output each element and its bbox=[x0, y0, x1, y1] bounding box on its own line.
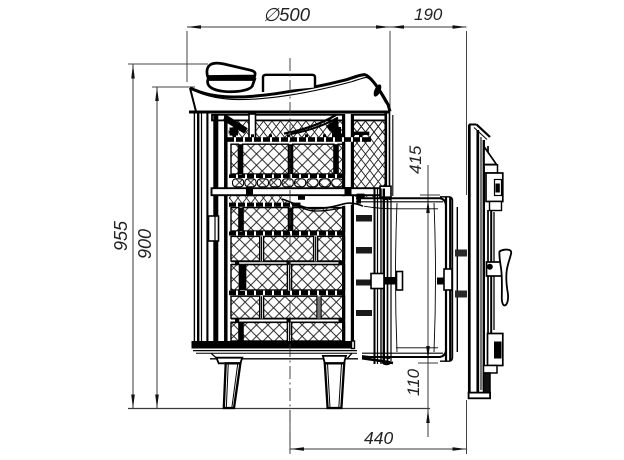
svg-text:900: 900 bbox=[135, 229, 155, 259]
svg-text:110: 110 bbox=[404, 368, 423, 396]
svg-text:415: 415 bbox=[406, 145, 425, 174]
svg-text:∅500: ∅500 bbox=[263, 4, 311, 25]
svg-text:955: 955 bbox=[111, 220, 131, 251]
svg-text:190: 190 bbox=[414, 5, 443, 24]
svg-text:440: 440 bbox=[364, 428, 393, 448]
